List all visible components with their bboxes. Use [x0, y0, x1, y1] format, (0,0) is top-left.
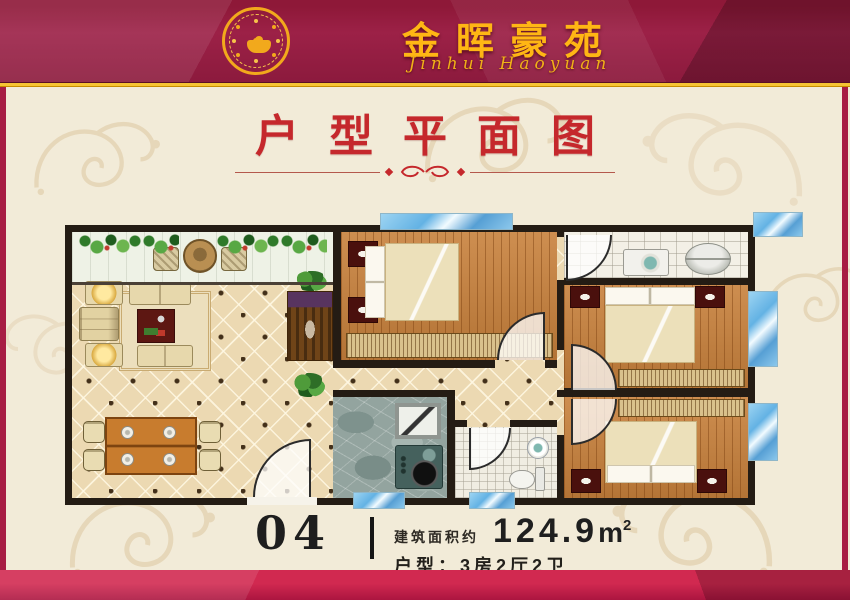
dining-chair	[199, 421, 221, 443]
wall	[510, 420, 557, 427]
area-label: 建筑面积约	[394, 527, 479, 547]
dining-chair	[83, 449, 105, 471]
bathroom-window	[469, 492, 515, 509]
toilet-tank	[535, 467, 545, 491]
divider-line	[235, 172, 380, 173]
wall	[557, 390, 564, 397]
bedroom-2-bed	[605, 305, 695, 363]
wall	[65, 498, 250, 505]
unit-number: 04	[255, 506, 331, 560]
balcony-plants	[77, 234, 179, 256]
kitchen-sink	[395, 403, 441, 439]
nightstand	[697, 469, 727, 493]
wardrobe	[618, 369, 745, 387]
header-banner: 金晖豪苑 Jinhui Haoyuan	[0, 0, 850, 82]
entry-threshold	[247, 497, 317, 505]
title-divider	[235, 163, 615, 181]
divider-flourish-icon	[398, 163, 452, 181]
armchair	[85, 343, 123, 367]
wall	[557, 232, 564, 237]
divider-line	[470, 172, 615, 173]
info-divider	[370, 517, 374, 559]
nightstand	[695, 286, 725, 308]
stove	[395, 445, 443, 489]
wall	[447, 397, 455, 498]
brand-subtitle: Jinhui Haoyuan	[310, 54, 710, 74]
plate	[121, 453, 134, 466]
balcony-plants	[215, 234, 327, 256]
tv-cabinet	[287, 291, 333, 361]
wash-basin	[685, 243, 731, 275]
master-bed	[385, 243, 459, 321]
banner-gold-line	[0, 82, 850, 87]
wall	[333, 232, 341, 368]
wall	[333, 390, 455, 397]
bedroom-2-window	[748, 291, 778, 367]
loveseat	[137, 345, 193, 367]
section-title: 户型平面图	[0, 100, 850, 164]
bedroom-3-window	[748, 403, 778, 461]
wall	[557, 280, 564, 350]
plate	[121, 426, 134, 439]
balcony-glass-door	[72, 282, 333, 285]
potted-plant	[295, 271, 327, 291]
corner-window	[753, 212, 803, 237]
gold-ingot-icon	[247, 40, 271, 53]
area-exponent: 2	[623, 517, 631, 534]
area-value: 124.9	[493, 512, 598, 551]
divider-diamond	[385, 168, 393, 176]
washing-machine	[623, 249, 669, 276]
bathroom-basin	[527, 437, 549, 459]
toilet	[509, 470, 535, 489]
nightstand	[571, 469, 601, 493]
potted-plant	[293, 373, 325, 397]
floor-plan	[65, 225, 755, 505]
area-row: 建筑面积约 124.9 m 2	[394, 512, 631, 551]
dining-chair	[199, 449, 221, 471]
dining-chair	[83, 421, 105, 443]
wall	[564, 278, 748, 285]
wall	[65, 225, 72, 505]
bed-pillows	[605, 287, 695, 305]
unit-info: 建筑面积约 124.9 m 2 户型：3房2厅2卫	[394, 512, 631, 578]
plate	[163, 426, 176, 439]
divider-diamond	[457, 168, 465, 176]
bed-pillows	[365, 246, 385, 318]
kitchen-window	[353, 492, 405, 509]
footer-banner	[0, 570, 850, 600]
dining-table	[105, 417, 197, 475]
master-bedroom-window	[380, 213, 513, 230]
brand-seal-icon	[222, 7, 290, 75]
wall	[341, 360, 495, 368]
loveseat	[129, 283, 191, 305]
patio-table	[183, 239, 217, 273]
area-unit: m	[598, 517, 623, 549]
bed-pillows	[607, 465, 695, 483]
wall	[455, 420, 467, 427]
wall	[545, 360, 557, 368]
wardrobe	[618, 399, 745, 417]
sofa	[79, 307, 119, 341]
nightstand	[570, 286, 600, 308]
plate	[163, 453, 176, 466]
coffee-table	[137, 309, 175, 343]
wall	[557, 435, 564, 498]
